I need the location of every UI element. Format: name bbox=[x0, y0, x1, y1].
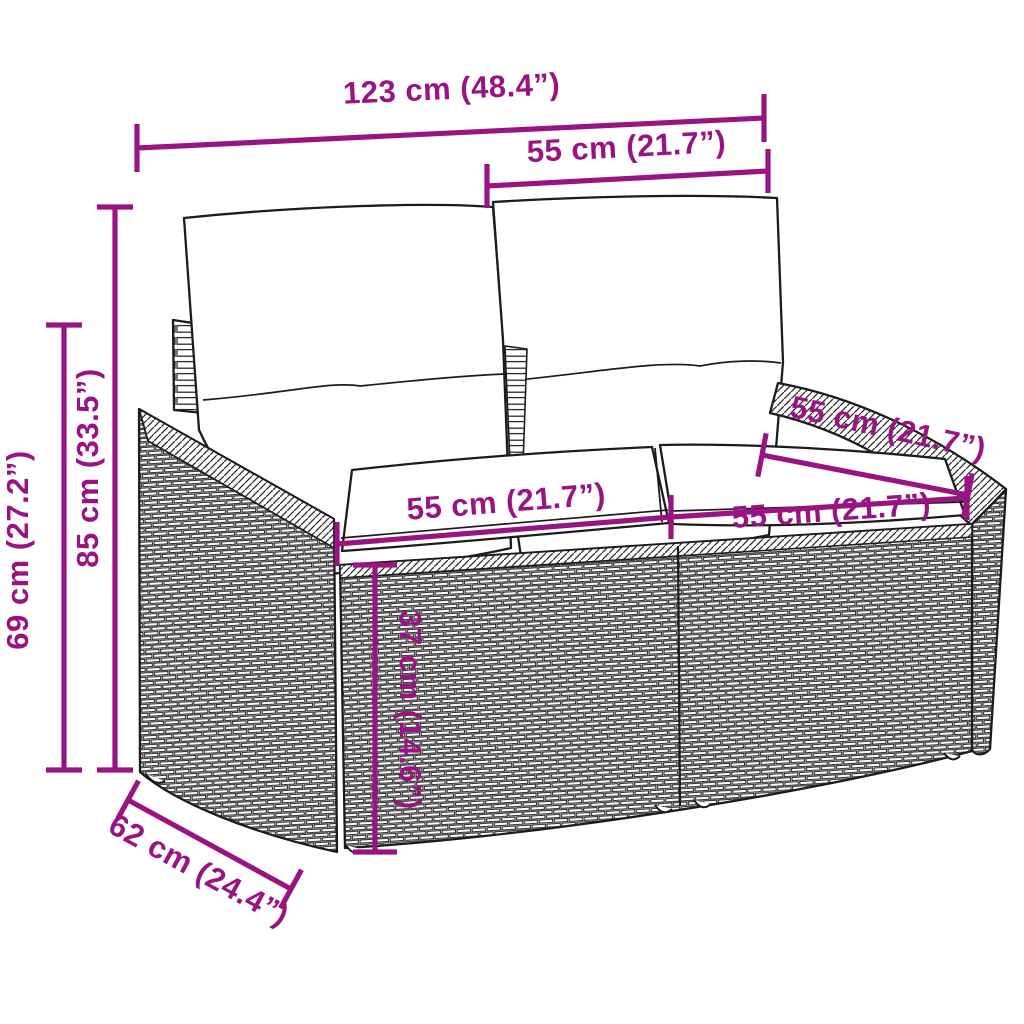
dim-seat-height-label: 37 cm (14.6”) bbox=[393, 610, 428, 810]
dim-overall-width-label: 123 cm (48.4”) bbox=[342, 66, 561, 110]
dim-overall-height-label: 85 cm (33.5”) bbox=[70, 368, 105, 568]
dim-armrest-height-label: 69 cm (27.2”) bbox=[0, 450, 35, 650]
dim-backrest-cushion-width-label: 55 cm (21.7”) bbox=[526, 124, 727, 169]
dim-overall-height: 85 cm (33.5”) bbox=[70, 207, 133, 770]
front-wicker-panel bbox=[340, 524, 972, 853]
diagram-canvas: 123 cm (48.4”) 55 cm (21.7”) 85 cm (33.5… bbox=[0, 0, 1024, 1024]
diagram-page: 123 cm (48.4”) 55 cm (21.7”) 85 cm (33.5… bbox=[0, 0, 1024, 1024]
